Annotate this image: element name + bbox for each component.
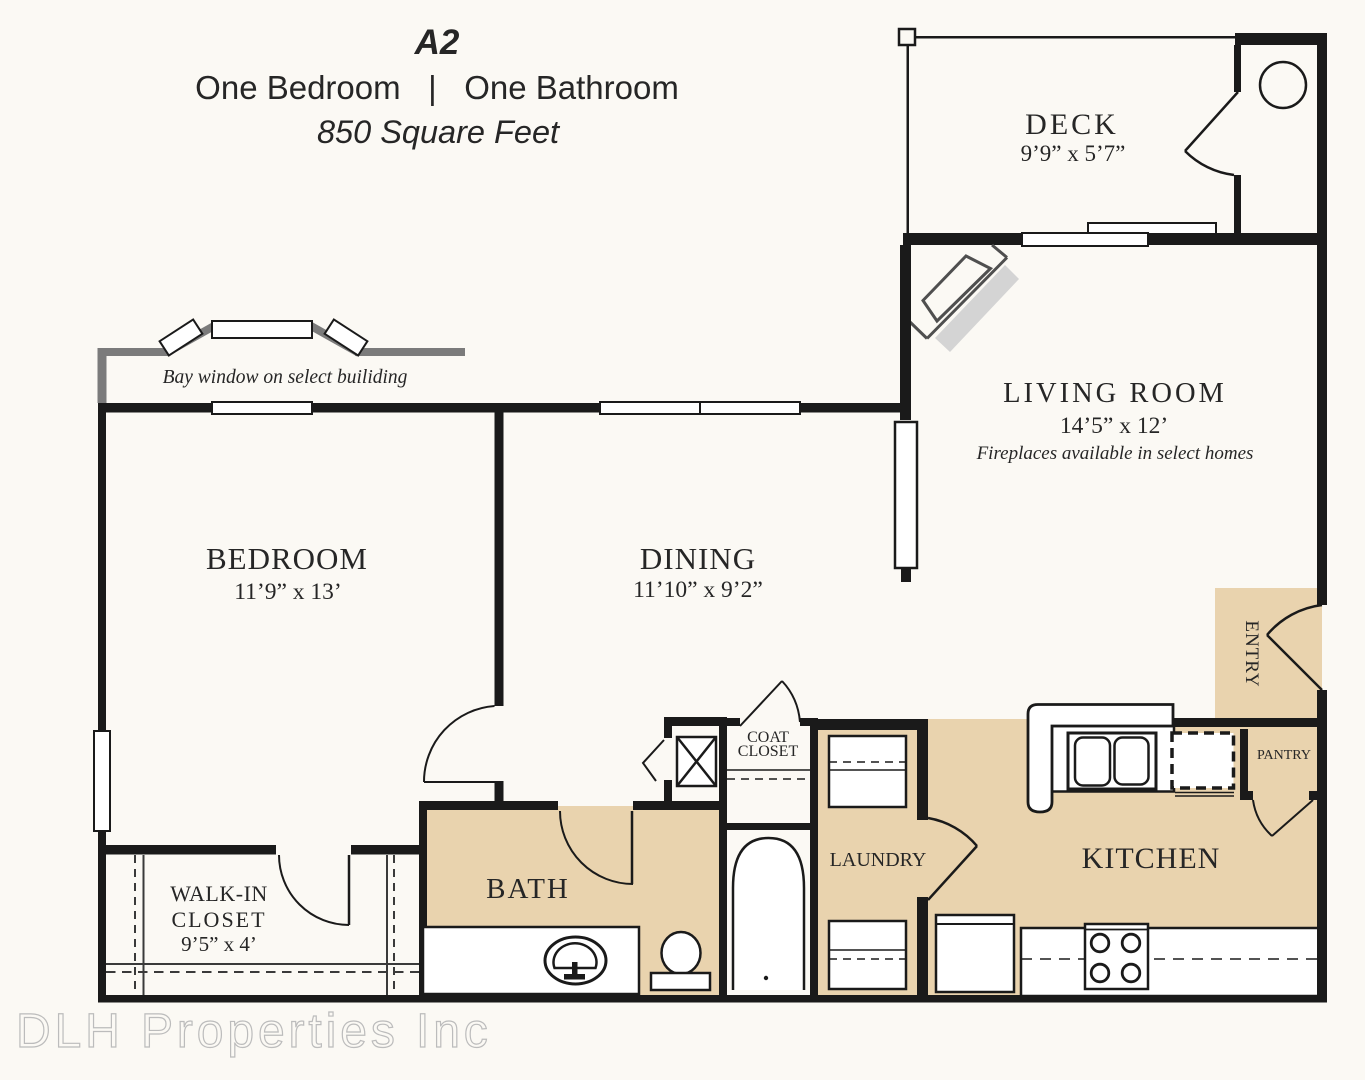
svg-text:KITCHEN: KITCHEN (1082, 842, 1221, 875)
svg-text:ENTRY: ENTRY (1241, 620, 1262, 687)
svg-text:One Bedroom | One Bathroom: One Bedroom | One Bathroom (195, 69, 679, 106)
svg-text:Fireplaces available in select: Fireplaces available in select homes (976, 443, 1254, 464)
svg-text:BEDROOM: BEDROOM (206, 541, 368, 576)
svg-text:14’5” x 12’: 14’5” x 12’ (1060, 413, 1168, 439)
svg-text:DLH Properties Inc: DLH Properties Inc (16, 1005, 492, 1058)
svg-text:A2: A2 (414, 23, 460, 62)
svg-text:WALK-IN: WALK-IN (170, 881, 268, 906)
svg-text:DINING: DINING (640, 541, 756, 576)
svg-text:LAUNDRY: LAUNDRY (830, 849, 927, 871)
svg-text:9’9” x 5’7”: 9’9” x 5’7” (1021, 141, 1126, 166)
svg-text:9’5” x 4’: 9’5” x 4’ (181, 932, 257, 956)
svg-text:BATH: BATH (486, 873, 570, 905)
svg-text:11’9” x 13’: 11’9” x 13’ (234, 579, 341, 605)
svg-text:PANTRY: PANTRY (1257, 748, 1311, 763)
svg-text:DECK: DECK (1025, 108, 1119, 141)
svg-text:LIVING ROOM: LIVING ROOM (1003, 378, 1227, 409)
svg-text:CLOSET: CLOSET (171, 907, 266, 932)
svg-text:850 Square Feet: 850 Square Feet (317, 114, 561, 150)
svg-text:Bay window on select builiding: Bay window on select builiding (163, 367, 408, 388)
svg-text:11’10” x 9’2”: 11’10” x 9’2” (633, 577, 763, 603)
svg-text:CLOSET: CLOSET (738, 743, 799, 760)
